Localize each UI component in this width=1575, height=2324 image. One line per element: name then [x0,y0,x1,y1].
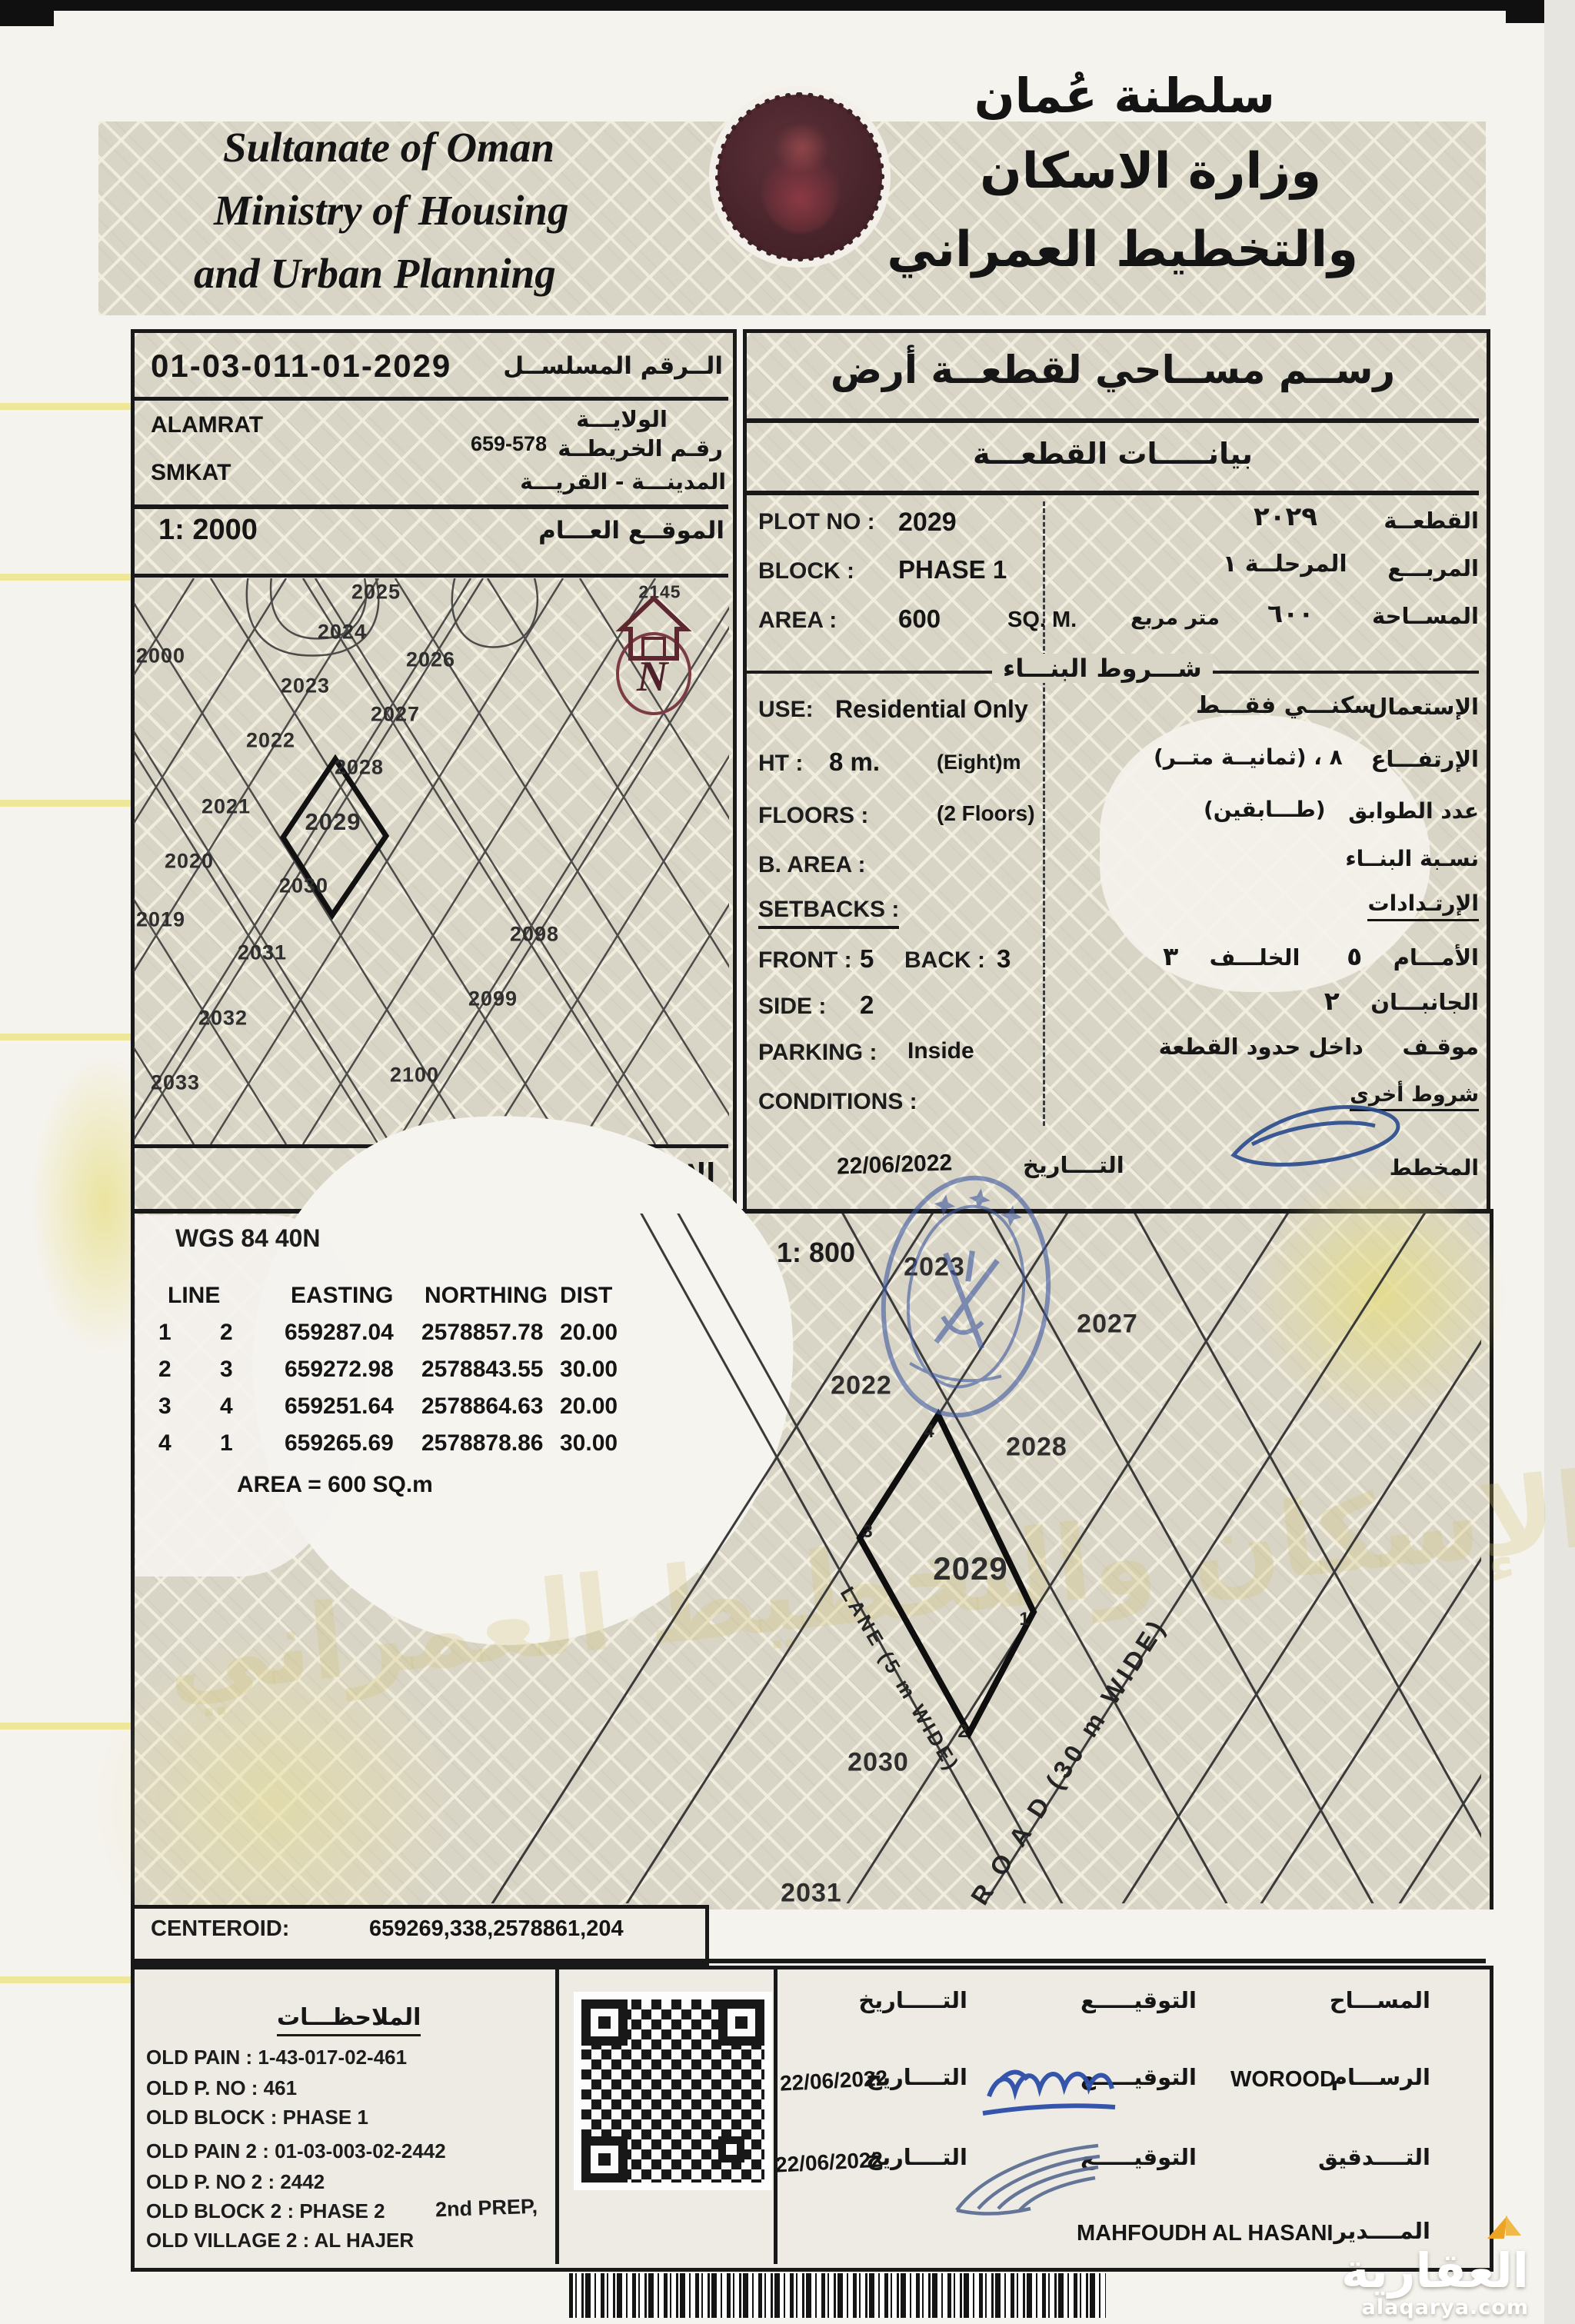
plot-label: 2033 [151,1071,200,1095]
note-line: OLD PAIN 2 : 01-03-003-02-2442 [146,2139,446,2163]
scan-streak [0,1976,132,1983]
conditions-label-ar: شروط أخرى [1350,1083,1479,1111]
front-label-ar: الأمـــام [1394,944,1479,971]
scanned-land-survey-document: Sultanate of Oman Ministry of Housing an… [0,0,1575,2324]
header-title-ar-line2: وزارة الاسكان [980,143,1321,200]
floors-value: (2 Floors) [937,801,1035,826]
centeroid-value: 659269,338,2578861,204 [369,1916,624,1942]
corner-label-3: 3 [862,1521,872,1543]
qr-code-pattern [581,1999,764,2182]
detail-scale: 1: 800 [777,1237,855,1269]
col-header-east: EASTING [291,1283,393,1309]
coord-cell: 4 [220,1393,233,1420]
surveyor-date-label: التـــــاريخ [858,1987,967,2013]
floors-label: FLOORS : [758,803,868,829]
coord-cell: 20.00 [560,1320,618,1346]
block-label-ar: المربـــع [1387,555,1479,581]
director-name: MAHFOUDH AL HASANI [1077,2221,1334,2246]
col-header-dist: DIST [560,1283,612,1309]
brand-icon [1489,2211,1524,2242]
parking-label-ar: موقـف [1402,1034,1479,1060]
coord-cell: 2578878.86 [421,1430,544,1457]
corner-label-2: 2 [957,1721,967,1743]
plot-label: 2100 [390,1064,439,1087]
front-label: FRONT : [758,947,852,974]
plot-no-label: PLOT NO : [758,509,875,535]
height-label-ar: الإرتفـــاع [1371,746,1479,772]
plot-label: 2032 [198,1007,248,1030]
survey-title-divider [747,418,1479,423]
coord-cell: 4 [158,1430,171,1457]
survey-subtitle-divider [747,491,1479,495]
side-value: 2 [860,991,874,1020]
bottom-divider-1 [555,1966,559,2264]
col-header-line: LINE [168,1283,220,1309]
wilaya-label: الولايـــة [576,406,668,432]
plot-label: 2026 [406,648,455,672]
qr-code [574,1992,772,2190]
height-value: 8 m. [829,747,880,777]
col-header-north: NORTHING [425,1283,548,1309]
building-area-label-ar: نسـبة البنــاء [1345,846,1479,871]
scan-streak [0,574,132,581]
block-value: PHASE 1 [898,555,1007,584]
conditions-label: CONDITIONS : [758,1089,917,1115]
plot-label: 2099 [468,987,518,1011]
corner-label-4: 4 [924,1421,934,1443]
north-arrow-icon: N [614,594,694,717]
header-title-ar-line3: والتخطيط العمراني [887,221,1358,278]
ministry-seal-emblem [718,95,882,259]
coord-cell: 30.00 [560,1430,618,1457]
area-label-ar: المســاحة [1372,603,1479,629]
side-ar: الجانبـــان ٢ [1324,986,1479,1016]
note-line: OLD PAIN : 1-43-017-02-461 [146,2046,407,2069]
coord-cell: 659287.04 [285,1320,394,1346]
plot-label: 2000 [136,644,185,668]
bottom-divider-2 [774,1966,778,2264]
front-value-ar: ٥ [1347,941,1362,971]
use-value: Residential Only [835,695,1028,724]
survey-date: 22/06/2022 [836,1150,952,1180]
north-letter: N [637,652,668,701]
plot-label: 2098 [510,923,559,947]
plot-label: 2023 [281,674,330,698]
use-value-ar: سكنـــي فقـــط [1196,692,1377,719]
ministry-seal [709,86,891,268]
use-label: USE: [758,697,814,723]
coord-cell: 1 [220,1430,233,1457]
detail-plot-label: 2030 [847,1748,909,1778]
notes-header: الملاحظـــات [277,2004,421,2036]
overview-scale: 1: 2000 [158,514,258,547]
note-line: OLD BLOCK : PHASE 1 [146,2106,368,2129]
setbacks-label: SETBACKS : [758,897,899,929]
floors-label-ar: عدد الطوابق [1348,798,1479,824]
overview-scale-label: الموقــع العـــام [538,517,724,544]
map-number-value: 659-578 [471,432,547,456]
detail-plot-label-highlight: 2029 [933,1550,1007,1587]
building-conditions-header: شـــروط البنـــاء [992,654,1213,683]
note-line: OLD BLOCK 2 : PHASE 2 [146,2199,385,2223]
village-label: المدينـــة - القريـــة [520,469,726,494]
draftsman-name: WOROOD [1230,2067,1336,2093]
coord-cell: 1 [158,1320,171,1346]
plot-label-highlight: 2029 [305,808,361,836]
coordinates-table: LINE EASTING NORTHING DIST 1 2 659287.04… [154,1283,661,1513]
plot-label: 2019 [136,908,185,932]
coord-cell: 2 [158,1357,171,1383]
plot-no-value: 2029 [898,508,957,538]
note-line: OLD P. NO : 461 [146,2076,297,2100]
checker-sig-label: التوقيـــــع [1081,2144,1197,2170]
plot-label: 2024 [318,621,367,644]
plot-label: 2027 [371,703,420,727]
detail-plot-label: 2028 [1006,1433,1067,1463]
block-label: BLOCK : [758,558,854,584]
side-value-ar: ٢ [1324,986,1340,1016]
plot-no-label-ar: القطعــة [1384,508,1479,534]
scan-top-edge [0,0,1575,11]
detail-plot-label: 2023 [904,1253,965,1283]
front-back-ar: الأمـــام ٥ الخلـــف ٣ [1163,941,1479,971]
parking-label: PARKING : [758,1040,877,1066]
detail-plot-label: 2031 [781,1879,842,1909]
column-inner-divider [1043,501,1045,1126]
surveyor-sig-label: التوقيـــــع [1081,1987,1197,2013]
datum-label: WGS 84 40N [175,1224,321,1253]
back-value: 3 [997,944,1011,974]
coord-cell: 2578857.78 [421,1320,544,1346]
front-value: 5 [860,944,874,974]
plot-label: 2030 [279,874,328,898]
centeroid-label: CENTEROID: [151,1916,289,1942]
height-value-ar: ٨ ، (ثمانيــة متــر) [1154,744,1343,770]
detail-plot-label: 2027 [1077,1310,1138,1340]
plot-label: 2022 [246,729,295,753]
side-label: SIDE : [758,994,826,1020]
parking-value-ar: داخل حدود القطعة [1159,1034,1364,1060]
back-label-ar: الخلـــف [1210,944,1300,971]
area-label: AREA : [758,608,837,634]
plot-label: 2028 [335,756,384,780]
plot-label: 2025 [351,581,401,604]
back-value-ar: ٣ [1163,941,1178,971]
area-value: 600 [898,604,941,634]
note-line: OLD VILLAGE 2 : AL HAJER [146,2229,414,2252]
scan-right-edge [1544,0,1575,2324]
area-value-ar: ٦٠٠ [1267,598,1314,628]
detail-plot-label: 2022 [831,1371,892,1401]
area-equation: AREA = 600 SQ.m [237,1472,433,1498]
header-title-en-line3: and Urban Planning [194,249,556,298]
plot-label: 2031 [238,941,287,965]
map-number-label: رقـم الخريطــة [558,435,723,461]
coord-cell: 659251.64 [285,1393,394,1420]
prep-note: 2nd PREP, [435,2195,538,2222]
plot-no-value-ar: ٢٠٢٩ [1254,501,1317,532]
survey-title: رســم مســاحي لقطعــة أرض [743,348,1483,392]
corner-label-1: 1 [1019,1609,1029,1630]
back-label: BACK : [904,947,985,974]
use-label-ar: الإستعمال [1368,694,1479,720]
plot-label: 2020 [165,850,214,874]
surveyor-role: المســـاح [1330,1987,1430,2013]
scan-streak [0,800,132,807]
serial-row-divider [135,397,728,401]
side-label-ar: الجانبـــان [1370,989,1479,1015]
scale-row-divider [135,574,728,578]
height-label: HT : [758,751,803,777]
coord-cell: 659272.98 [285,1357,394,1383]
parking-value: Inside [907,1038,974,1064]
date-label-ar: التــــاريخ [1023,1152,1124,1178]
serial-number: 01-03-011-01-2029 [151,348,451,385]
coord-cell: 3 [158,1393,171,1420]
serial-label: الــرقم المسلســل [503,352,723,380]
map-bottom-border [131,1959,1486,1963]
survey-subtitle: بيانـــــات القطعـــة [743,437,1483,471]
scan-corner-mark-left [0,0,54,26]
height-note: (Eight)m [937,751,1021,774]
building-area-label: B. AREA : [758,852,865,878]
barcode [569,2273,1106,2318]
plot-label: 2021 [201,795,251,819]
brand-domain: alaqarya.com [1341,2296,1529,2319]
coord-cell: 30.00 [560,1357,618,1383]
village-value: SMKAT [151,460,231,486]
coord-cell: 2578864.63 [421,1393,544,1420]
note-line: OLD P. NO 2 : 2442 [146,2170,325,2194]
floors-value-ar: (طـــابقين) [1204,797,1325,822]
brand-name: العقارية [1341,2246,1529,2296]
wilaya-value: ALAMRAT [151,412,263,438]
block-value-ar: المرحلــة ١ [1223,551,1347,578]
header-title-ar-line1: سلطنة عُمان [974,68,1275,124]
draftsman-sig-label: التوقيـــــع [1081,2064,1197,2090]
header-title-en-line1: Sultanate of Oman [223,123,554,171]
scan-streak [0,403,132,410]
checker-role: التــــدقيق [1318,2144,1430,2170]
location-row-divider [135,504,728,509]
draftsman-role: الرســـام [1331,2064,1430,2090]
coord-cell: 659265.69 [285,1430,394,1457]
coord-cell: 2578843.55 [421,1357,544,1383]
coord-cell: 3 [220,1357,233,1383]
coord-cell: 20.00 [560,1393,618,1420]
setbacks-label-ar: الإرتـدادات [1367,891,1479,921]
header-title-en-line2: Ministry of Housing [214,186,569,235]
scan-streak [0,1034,132,1040]
coord-cell: 2 [220,1320,233,1346]
parking-ar: موقـف داخل حدود القطعة [1159,1034,1479,1060]
area-unit: SQ. M. [1007,608,1077,633]
area-unit-ar: متر مربع [1130,606,1220,630]
brand-watermark: العقارية alaqarya.com [1341,2211,1529,2319]
